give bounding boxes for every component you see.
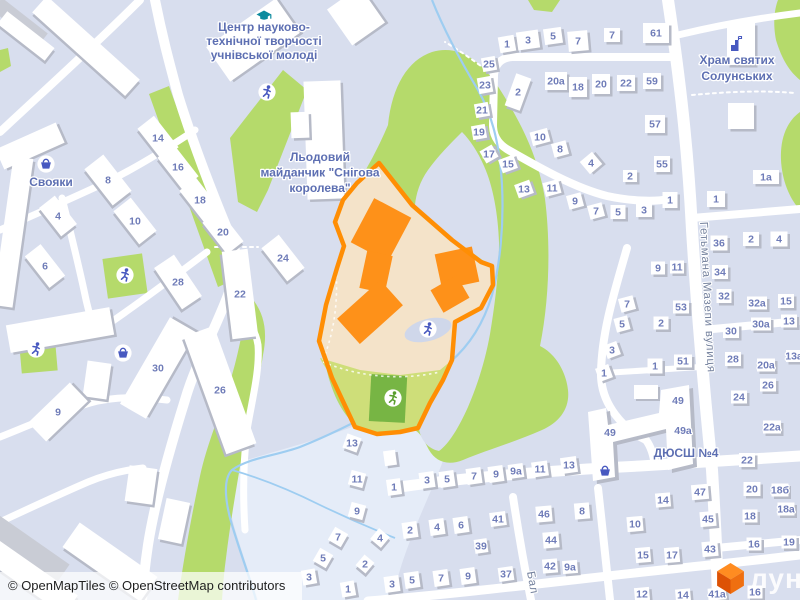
building-number: 37 <box>500 569 512 581</box>
building-number: 49 <box>672 395 684 407</box>
building-number: 10 <box>629 519 641 531</box>
building-number: 16 <box>172 162 184 174</box>
building-number: 7 <box>624 299 630 311</box>
building-number: 19 <box>783 537 795 549</box>
building-number: 4 <box>776 234 782 246</box>
playground-icon <box>27 340 44 357</box>
building-number: 49 <box>604 427 616 439</box>
building-number: 26 <box>762 380 774 392</box>
building-number: 9 <box>655 263 661 275</box>
building-number: 23 <box>479 80 491 92</box>
building-number: 22a <box>763 422 781 434</box>
building-number: 2 <box>658 318 664 330</box>
building-number: 1 <box>504 39 510 51</box>
poi-label-ice-rink: королева" <box>289 181 350 195</box>
building-number: 36 <box>713 238 725 250</box>
building-number: 61 <box>650 28 662 40</box>
building-number: 19 <box>473 127 485 139</box>
building-number: 6 <box>458 520 464 532</box>
building-number: 22 <box>234 289 246 301</box>
building-number: 3 <box>389 579 395 591</box>
building-number: 16 <box>748 539 760 551</box>
building-number: 7 <box>593 206 599 218</box>
poi-label-ice-rink: Льодовий <box>290 150 350 164</box>
building-number: 12 <box>636 589 648 600</box>
building-number: 15 <box>502 159 514 171</box>
building-number: 6 <box>42 261 48 273</box>
building-number: 8 <box>557 144 563 156</box>
building-number: 9 <box>493 469 499 481</box>
building-number: 11 <box>671 262 682 274</box>
building-number: 5 <box>409 575 415 587</box>
building-number: 9 <box>354 506 360 518</box>
building-number: 5 <box>444 474 450 486</box>
building-number: 32a <box>748 298 766 310</box>
building <box>82 361 114 403</box>
building-number: 1 <box>391 482 397 494</box>
building-number: 24 <box>277 253 289 265</box>
poi-label-church-thessaloniki: Храм святих <box>699 53 774 67</box>
building-number: 5 <box>615 207 621 219</box>
map-tiles: 9141618208104624282230261357761252321191… <box>0 0 800 600</box>
building-number: 8 <box>105 175 111 187</box>
building-number: 9a <box>510 466 522 478</box>
building-number: 11 <box>546 183 557 195</box>
building-number: 1a <box>760 172 772 184</box>
building-number: 11 <box>534 464 545 476</box>
building-number: 9 <box>55 407 61 419</box>
building-number: 10 <box>534 132 546 144</box>
building-number: 21 <box>476 105 488 117</box>
building-number: 9 <box>572 196 578 208</box>
building-number: 18б <box>771 485 790 497</box>
building-number: 13 <box>518 184 530 196</box>
building-number: 30 <box>725 326 737 338</box>
building-number: 18 <box>572 82 584 94</box>
building-number: 2 <box>407 525 413 537</box>
building-number: 18 <box>744 511 756 523</box>
poi-label-education-center: технічної творчості <box>206 34 321 48</box>
building-number: 18a <box>777 504 795 516</box>
building-number: 2 <box>362 559 368 571</box>
building-number: 3 <box>424 475 430 487</box>
building-number: 34 <box>714 267 726 279</box>
building-number: 4 <box>377 533 383 545</box>
building-number: 17 <box>483 149 495 161</box>
building-number: 59 <box>646 76 658 88</box>
building-number: 7 <box>575 36 581 48</box>
map-canvas[interactable]: 9141618208104624282230261357761252321191… <box>0 0 800 600</box>
building-number: 20 <box>595 79 607 91</box>
building-number: 14 <box>152 133 164 145</box>
poi-label-sports-school: ДЮСШ №4 <box>654 446 719 460</box>
building-number: 1 <box>652 361 658 373</box>
building-number: 20a <box>547 76 565 88</box>
building-number: 7 <box>609 30 615 42</box>
building-number: 11 <box>351 474 362 486</box>
building-number: 20a <box>757 360 775 372</box>
building-number: 46 <box>538 509 550 521</box>
playground-icon <box>116 266 133 283</box>
building-number: 5 <box>550 31 556 43</box>
building-number: 15 <box>637 550 649 562</box>
building-number: 28 <box>727 354 739 366</box>
building-number: 55 <box>656 159 668 171</box>
building-number: 30a <box>752 319 770 331</box>
poi-label-education-center: Центр науково- <box>218 20 310 34</box>
building-number: 14 <box>657 495 669 507</box>
poi-label-church-thessaloniki: Солунських <box>701 69 773 83</box>
building-number: 8 <box>579 506 585 518</box>
building <box>383 449 400 468</box>
building-number: 51 <box>677 356 689 368</box>
building-number: 1 <box>601 368 607 380</box>
playground-icon <box>258 83 275 100</box>
building-number: 5 <box>320 553 326 565</box>
building-number: 3 <box>306 572 312 584</box>
building-number: 3 <box>641 205 647 217</box>
building-number: 25 <box>483 59 495 71</box>
playground-icon <box>419 320 436 337</box>
building-number: 24 <box>733 392 745 404</box>
building-number: 18 <box>194 195 206 207</box>
building-number: 43 <box>704 544 716 556</box>
building-number: 28 <box>172 277 184 289</box>
building-number: 1 <box>667 195 673 207</box>
playground-icon <box>384 389 401 406</box>
building <box>291 112 312 141</box>
building-number: 9a <box>564 562 576 574</box>
building-number: 7 <box>335 532 341 544</box>
building-number: 9 <box>465 571 471 583</box>
building-number: 22 <box>620 78 632 90</box>
building-number: 1 <box>345 584 351 596</box>
building-number: 20 <box>217 227 229 239</box>
building-number: 39 <box>475 541 487 553</box>
building-number: 41 <box>492 514 504 526</box>
building-number: 3 <box>525 35 531 47</box>
building-number: 47 <box>694 487 706 499</box>
poi-label-education-center: учнівської молоді <box>211 48 318 62</box>
building-number: 13 <box>783 316 795 328</box>
building-number: 7 <box>438 573 444 585</box>
building-number: 32 <box>718 291 730 303</box>
attribution-text[interactable]: © OpenMapTiles © OpenStreetMap contribut… <box>8 578 285 593</box>
building-number: 57 <box>649 119 661 131</box>
building-number: 22 <box>741 455 753 467</box>
poi-label-store-svoiaky: Свояки <box>29 175 72 189</box>
building-number: 7 <box>471 471 477 483</box>
building-number: 13 <box>346 438 358 450</box>
building-number: 14 <box>677 590 689 600</box>
building-number: 13a <box>785 351 800 363</box>
building-number: 5 <box>619 319 625 331</box>
attribution-bar[interactable]: © OpenMapTiles © OpenStreetMap contribut… <box>0 572 302 600</box>
building-number: 13 <box>563 460 575 472</box>
lun-cube-icon <box>716 562 745 595</box>
building-number: 26 <box>214 385 226 397</box>
building-number: 3 <box>609 345 615 357</box>
building-number: 45 <box>702 514 714 526</box>
building-number: 17 <box>666 550 678 562</box>
building <box>124 465 160 507</box>
building-number: 1 <box>713 194 719 206</box>
building-number: 4 <box>55 211 61 223</box>
building-number: 2 <box>627 171 633 183</box>
building-number: 4 <box>434 522 440 534</box>
lun-logo-text: лун <box>750 563 800 595</box>
building-number: 15 <box>780 296 792 308</box>
building-number: 2 <box>748 234 754 246</box>
building-number: 42 <box>544 561 556 573</box>
building-number: 4 <box>588 158 594 170</box>
building-number: 53 <box>675 302 687 314</box>
building <box>728 103 757 132</box>
poi-label-ice-rink: майданчик "Снігова <box>261 166 380 180</box>
building-number: 20 <box>746 484 758 496</box>
building-number: 10 <box>129 216 141 228</box>
lun-logo[interactable]: лун <box>716 562 800 595</box>
building-number: 2 <box>515 87 521 99</box>
building-number: 44 <box>545 535 557 547</box>
building-number: 49a <box>674 425 692 437</box>
building-number: 30 <box>152 363 164 375</box>
